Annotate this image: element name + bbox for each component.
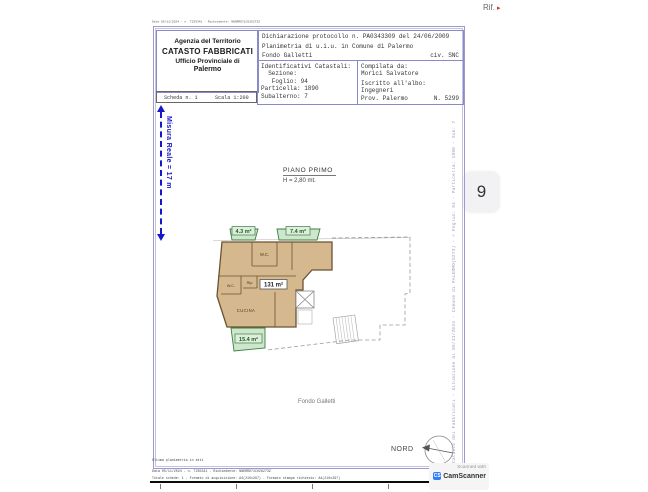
ruler-tick (160, 484, 161, 489)
ruler-tick (236, 484, 237, 489)
office-line-2: CATASTO FABBRICATI (157, 47, 258, 56)
footer-line-2: Data 05/11/2024 - n. T235341 - Richieden… (152, 469, 271, 473)
elevator-shaft-icon (296, 291, 314, 324)
side-margin-note: Catasto dei Fabbricati - Situazione al 0… (452, 118, 461, 463)
main-area-label: 131 m² (264, 282, 283, 289)
room-label-rip: Rip. (247, 281, 254, 285)
prov-row: Prov. Palermo N. 5299 (361, 95, 459, 102)
albo-numero: N. 5299 (434, 95, 459, 102)
catastali-columns: Identificativi Catastali: Sezione: Fogli… (258, 60, 463, 104)
planimetria-line: Planimetria di u.i.u. in Comune di Paler… (262, 43, 459, 50)
identificativi-column: Identificativi Catastali: Sezione: Fogli… (258, 61, 358, 104)
particella: Particella: 1890 (261, 85, 354, 92)
page-number: 9 (477, 182, 486, 202)
top-meta-line: Data 05/11/2024 - n. T235341 - Richieden… (152, 20, 260, 24)
footer-line-3: Totale schede: 1 - Formato di acquisizio… (152, 476, 340, 480)
camscanner-badge[interactable]: Scanned with CS CamScanner (429, 463, 489, 490)
office-line-1: Agenzia del Territorio (157, 38, 258, 45)
indirizzo: Fondo Galletti (262, 52, 312, 59)
foglio: Foglio: 94 (261, 78, 354, 85)
footer-line-1: Ultima planimetria in atti (152, 458, 203, 462)
street-label: Fondo Galletti (298, 399, 335, 405)
albo-title: Iscritto all'albo: (361, 80, 460, 87)
floor-plan-drawing: 4.3 m² 7.4 m² 15.4 m² 131 m² W.C. W.C. R… (205, 218, 455, 363)
room-label-cucina: CUCINA (237, 308, 255, 313)
civico: civ. SNC (430, 52, 459, 59)
identificativi-title: Identificativi Catastali: (261, 63, 354, 70)
camscanner-brand: CamScanner (443, 473, 486, 480)
prov-value: Prov. Palermo (361, 95, 408, 102)
scala-value: Scala 1:200 (215, 94, 249, 100)
scheda-bar: Scheda n. 1 Scala 1:200 (156, 91, 257, 103)
stairs-icon (333, 315, 358, 344)
floor-height: H = 2,80 mt. (283, 178, 316, 184)
floor-title: PIANO PRIMO (283, 167, 336, 176)
room-label-wc2: W.C. (227, 284, 235, 288)
rif-arrow-icon: ▸ (497, 5, 501, 12)
page-number-badge[interactable]: 9 (464, 172, 499, 212)
camscanner-logo-icon: CS (433, 472, 441, 480)
rif-link[interactable]: Rif.▸ (483, 3, 501, 12)
balcony-1-area-label: 4.3 m² (236, 228, 252, 235)
measure-arrow-bottom-icon (157, 234, 165, 241)
dichiarazione-line: Dichiarazione protocollo n. PA0343309 de… (262, 33, 459, 40)
measure-arrow-top-icon (157, 105, 165, 112)
room-label-wc1: W.C. (260, 252, 269, 257)
subalterno: Subalterno: 7 (261, 93, 354, 100)
compilata-column: Compilata da: Morici Salvatore Iscritto … (358, 61, 463, 104)
declaration-block: Dichiarazione protocollo n. PA0343309 de… (257, 30, 464, 105)
measure-label: Misura Reale = 17 m (165, 116, 172, 189)
sezione: Sezione: (261, 70, 354, 77)
north-label: NORD (391, 446, 414, 453)
scanned-with-label: Scanned with (443, 465, 486, 470)
ruler-tick (312, 484, 313, 489)
measure-dimension-line (160, 112, 162, 234)
albo-value: Ingegneri (361, 87, 460, 94)
office-line-4: Palermo (157, 66, 258, 73)
address-line: Fondo Galletti civ. SNC (262, 52, 459, 59)
footer-rule (150, 481, 465, 483)
document-viewer: Rif.▸ 9 Data 05/11/2024 - n. T235341 - R… (0, 0, 648, 492)
office-line-3: Ufficio Provinciale di (157, 58, 258, 65)
office-header-box: Agenzia del Territorio CATASTO FABBRICAT… (156, 30, 259, 93)
balcony-2-area-label: 7.4 m² (290, 228, 306, 235)
compilata-nome: Morici Salvatore (361, 70, 460, 77)
compilata-title: Compilata da: (361, 63, 460, 70)
scheda-number: Scheda n. 1 (164, 94, 198, 100)
rif-label: Rif. (483, 3, 495, 12)
ruler-tick (388, 484, 389, 489)
terrace-area-label: 15.4 m² (239, 336, 258, 343)
